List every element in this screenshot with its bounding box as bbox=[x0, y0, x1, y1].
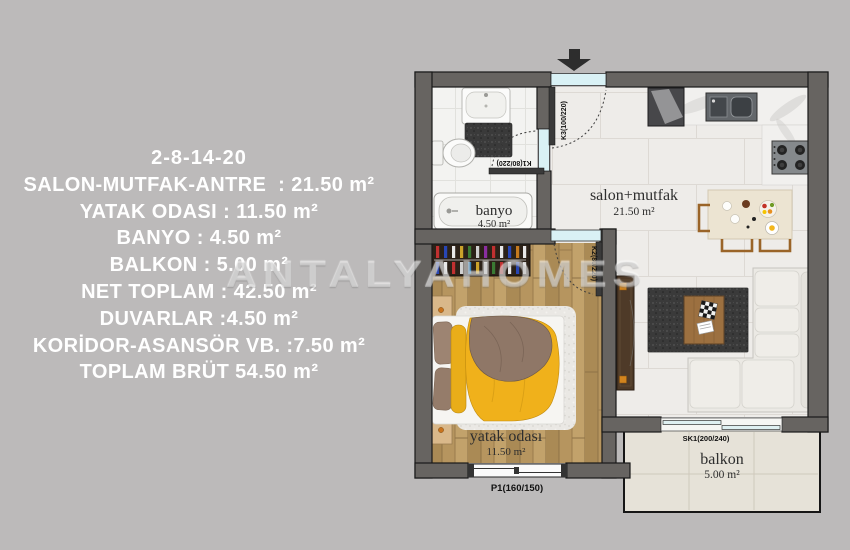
bedroom-area: 11.50 m² bbox=[487, 446, 527, 458]
bathroom-area: 4.50 m² bbox=[478, 219, 510, 230]
pillow-yellow bbox=[451, 325, 466, 413]
dining-table bbox=[708, 190, 792, 239]
wall-left bbox=[415, 72, 432, 478]
wall-top-left bbox=[415, 72, 551, 87]
wall-bedroom-right bbox=[602, 229, 616, 478]
bedroom-window: P1(160/150) bbox=[468, 464, 567, 494]
balcony-door-label: SK1(200/240) bbox=[683, 434, 730, 443]
floor-plan-page: 2-8-14-20 SALON-MUTFAK-ANTRE : 21.50 m² … bbox=[0, 0, 850, 550]
balcony-label: balkon bbox=[700, 451, 744, 468]
wall-bath-right-lower bbox=[537, 171, 551, 232]
chessboard bbox=[699, 301, 718, 320]
salon-label: salon+mutfak bbox=[590, 187, 678, 204]
wall-bedroom-bottom-right bbox=[566, 463, 630, 478]
wall-salon-bottom-left bbox=[602, 417, 661, 432]
bedroom-window-label: P1(160/150) bbox=[491, 483, 543, 494]
kitchen-sink bbox=[706, 93, 757, 121]
wardrobe bbox=[430, 243, 530, 276]
bedroom-door-opening bbox=[551, 230, 601, 241]
bathroom-door-opening bbox=[539, 129, 550, 171]
bedroom-label: yatak odası bbox=[470, 428, 543, 445]
bathroom-label: banyo bbox=[476, 203, 513, 219]
wall-mid-left bbox=[415, 229, 555, 244]
tv-console bbox=[617, 276, 634, 390]
wall-top-right bbox=[606, 72, 828, 87]
fruit-bowl bbox=[760, 201, 777, 218]
wall-salon-bottom-right bbox=[782, 417, 828, 432]
entrance-door-label: K3(100/220) bbox=[561, 101, 568, 140]
stove bbox=[772, 141, 808, 174]
bathroom-door-label: K1(80/220) bbox=[496, 159, 531, 166]
wall-bedroom-bottom-left bbox=[415, 463, 468, 478]
entrance-arrow-icon bbox=[557, 49, 591, 71]
balcony-area: 5.00 m² bbox=[704, 469, 740, 481]
toilet bbox=[432, 139, 475, 167]
entrance-door-opening bbox=[551, 74, 606, 86]
wall-right bbox=[808, 72, 828, 432]
salon-area: 21.50 m² bbox=[613, 206, 655, 218]
coffee-table bbox=[684, 296, 724, 344]
floor-plan-svg: yatak odası 11.50 m² banyo 4.50 m² bbox=[0, 0, 850, 550]
bedroom-door-label: K2(80/220) bbox=[590, 246, 597, 281]
bed bbox=[432, 306, 576, 430]
